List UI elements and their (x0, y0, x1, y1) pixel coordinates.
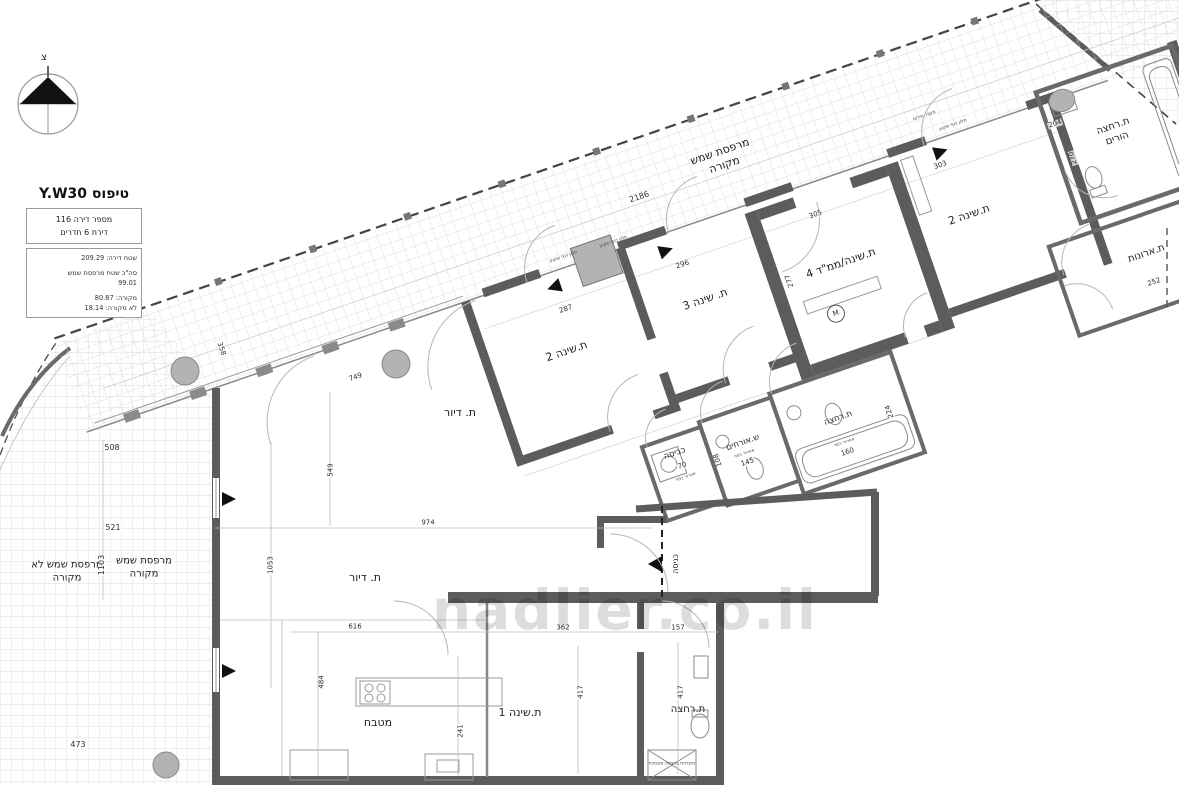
stove-fixture (360, 681, 390, 704)
balcony-total-label: סה"כ שטח מרפסת שמש (31, 268, 137, 278)
apartment-area: שטח דירה: 209.29 (31, 253, 137, 263)
apartment-rooms: דירת 6 חדרים (31, 226, 137, 239)
sink-fixture (694, 656, 708, 678)
floor-plan: nadlier.co.il טיפוס Y.W30 מספר דירה 116 … (0, 0, 1179, 786)
toilet-fixture (691, 714, 709, 738)
entrance-arrow-icon (648, 556, 662, 572)
window-markers-left (222, 492, 236, 678)
sink-fixture (714, 433, 731, 450)
washing-machine-fixture (651, 446, 687, 482)
balcony-uncovered: לא מקורה: 18.14 (31, 303, 137, 313)
closet-room-walls (1049, 186, 1179, 335)
top-balcony-strip (54, 0, 1179, 432)
area-info-box: שטח דירה: 209.29 סה"כ שטח מרפסת שמש 99.0… (26, 248, 142, 318)
balcony-total-value: 99.01 (31, 278, 137, 288)
kitchen-counter (290, 750, 348, 780)
title-block: טיפוס Y.W30 מספר דירה 116 דירת 6 חדרים ש… (26, 186, 142, 322)
kitchen-fixtures (290, 678, 502, 780)
apartment-number: מספר דירה 116 (31, 213, 137, 226)
north-label: צ (41, 52, 47, 63)
plan-type-title: טיפוס Y.W30 (26, 186, 142, 202)
toilet-fixture (744, 455, 766, 481)
floor-plan-drawing (0, 0, 1179, 786)
mamad-symbol-icon (825, 303, 847, 325)
compass-icon (18, 66, 78, 134)
sink-fixture (785, 404, 803, 422)
bath-fixtures-lower (648, 656, 709, 780)
balcony-covered: מקורה: 80.87 (31, 293, 137, 303)
apartment-info-box: מספר דירה 116 דירת 6 חדרים (26, 208, 142, 244)
kitchen-island (356, 678, 502, 706)
guest-wc-walls (699, 397, 800, 505)
toilet-fixture (822, 401, 844, 427)
watermark: nadlier.co.il (432, 578, 818, 642)
